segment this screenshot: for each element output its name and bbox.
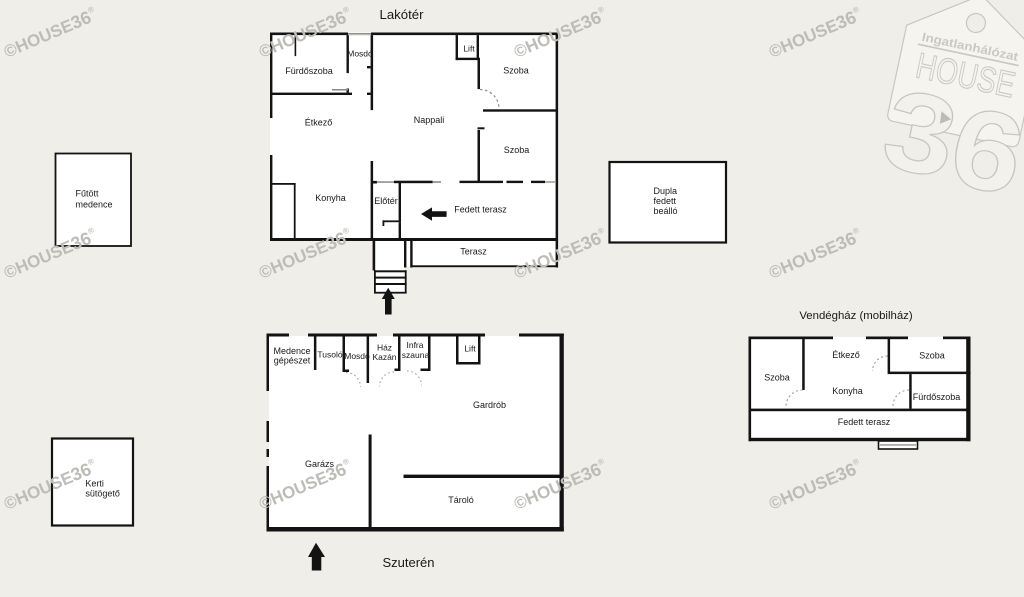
- svg-text:Fedett terasz: Fedett terasz: [838, 417, 891, 427]
- svg-text:Fedett terasz: Fedett terasz: [454, 205, 507, 215]
- svg-text:fedett: fedett: [654, 196, 677, 206]
- svg-text:Medence: Medence: [273, 346, 310, 356]
- svg-text:szauna: szauna: [402, 350, 430, 360]
- svg-text:Tusoló: Tusoló: [317, 350, 342, 360]
- svg-text:Nappali: Nappali: [414, 115, 445, 125]
- svg-text:Lift: Lift: [463, 44, 475, 54]
- svg-text:Tároló: Tároló: [448, 495, 474, 505]
- svg-text:sütögető: sütögető: [85, 489, 120, 499]
- svg-text:Terasz: Terasz: [460, 247, 487, 257]
- svg-text:Gardrób: Gardrób: [473, 400, 506, 410]
- svg-text:Szoba: Szoba: [764, 373, 790, 383]
- svg-text:Fürdőszoba: Fürdőszoba: [285, 66, 333, 76]
- svg-text:Étkező: Étkező: [832, 350, 860, 360]
- svg-text:Vendégház (mobilház): Vendégház (mobilház): [799, 310, 913, 322]
- svg-text:Szoba: Szoba: [503, 66, 529, 76]
- svg-text:Mosdó: Mosdó: [347, 49, 373, 59]
- svg-text:Lakótér: Lakótér: [380, 7, 425, 22]
- svg-text:Szoba: Szoba: [919, 351, 945, 361]
- svg-text:Előtér: Előtér: [374, 196, 398, 206]
- svg-text:Szuterén: Szuterén: [382, 555, 434, 570]
- svg-text:Kerti: Kerti: [85, 479, 104, 489]
- svg-text:Fürdőszoba: Fürdőszoba: [913, 392, 961, 402]
- svg-text:Dupla: Dupla: [654, 186, 678, 196]
- svg-text:medence: medence: [76, 200, 113, 210]
- svg-text:gépészet: gépészet: [274, 355, 311, 365]
- svg-text:Étkező: Étkező: [305, 118, 333, 128]
- svg-text:Mosdó: Mosdó: [344, 351, 370, 361]
- svg-text:Konyha: Konyha: [315, 193, 346, 203]
- svg-text:beálló: beálló: [654, 206, 678, 216]
- svg-text:Szoba: Szoba: [504, 145, 530, 155]
- svg-text:Kazán: Kazán: [372, 352, 396, 362]
- svg-text:Fűtött: Fűtött: [76, 188, 100, 198]
- svg-text:Infra: Infra: [406, 340, 423, 350]
- svg-text:Konyha: Konyha: [832, 386, 863, 396]
- svg-text:Lift: Lift: [464, 344, 476, 354]
